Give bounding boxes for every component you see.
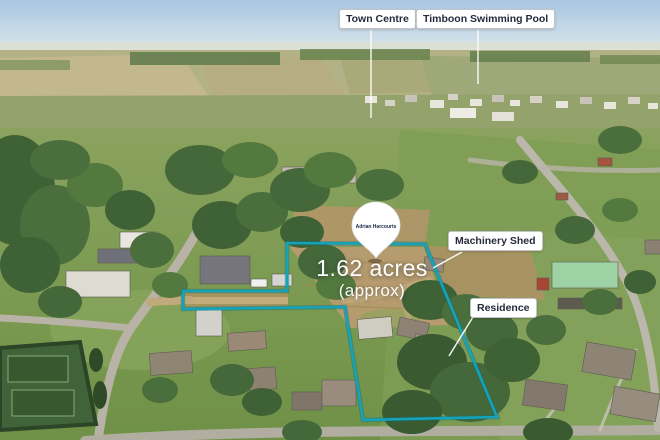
tree	[602, 198, 638, 222]
area-size-text: 1.62 acres	[316, 255, 427, 282]
tree	[0, 237, 60, 293]
aerial-photo: Adrian Harcourts Town Centre Timboon Swi…	[0, 0, 660, 440]
cottage-roof	[357, 317, 393, 340]
house-roof	[598, 158, 612, 166]
tree	[130, 232, 174, 268]
callout-town-centre: Town Centre	[339, 9, 416, 29]
tree	[502, 160, 538, 184]
tree	[210, 364, 254, 396]
house-roof	[322, 380, 356, 406]
agency-logo-text: Adrian Harcourts	[356, 224, 397, 230]
shed-roof	[537, 278, 549, 290]
tree	[598, 126, 642, 154]
house-roof	[149, 351, 192, 376]
tree	[555, 216, 595, 244]
tree	[484, 338, 540, 382]
callout-residence: Residence	[470, 298, 537, 318]
callout-machinery-shed: Machinery Shed	[448, 231, 543, 251]
house-roof	[522, 379, 567, 411]
shed-roof	[196, 308, 222, 336]
tree	[382, 390, 442, 434]
house-roof	[556, 193, 568, 200]
house-roof	[292, 392, 322, 410]
tree	[242, 388, 282, 416]
house-roof	[200, 256, 250, 284]
tree	[304, 152, 356, 188]
tree	[38, 286, 82, 318]
tree	[165, 145, 235, 195]
tree	[582, 289, 618, 315]
area-qualifier-text: (approx)	[339, 281, 406, 301]
tree	[222, 142, 278, 178]
house-roof	[227, 331, 266, 352]
tree	[356, 169, 404, 201]
tree	[526, 315, 566, 345]
callout-swimming-pool: Timboon Swimming Pool	[416, 9, 555, 29]
caravan	[251, 279, 267, 287]
tree	[30, 140, 90, 180]
aerial-scene: Adrian Harcourts	[0, 0, 660, 440]
tree	[105, 190, 155, 230]
house-roof	[552, 262, 618, 288]
tree	[624, 270, 656, 294]
tree	[142, 377, 178, 403]
house-roof	[645, 240, 660, 254]
